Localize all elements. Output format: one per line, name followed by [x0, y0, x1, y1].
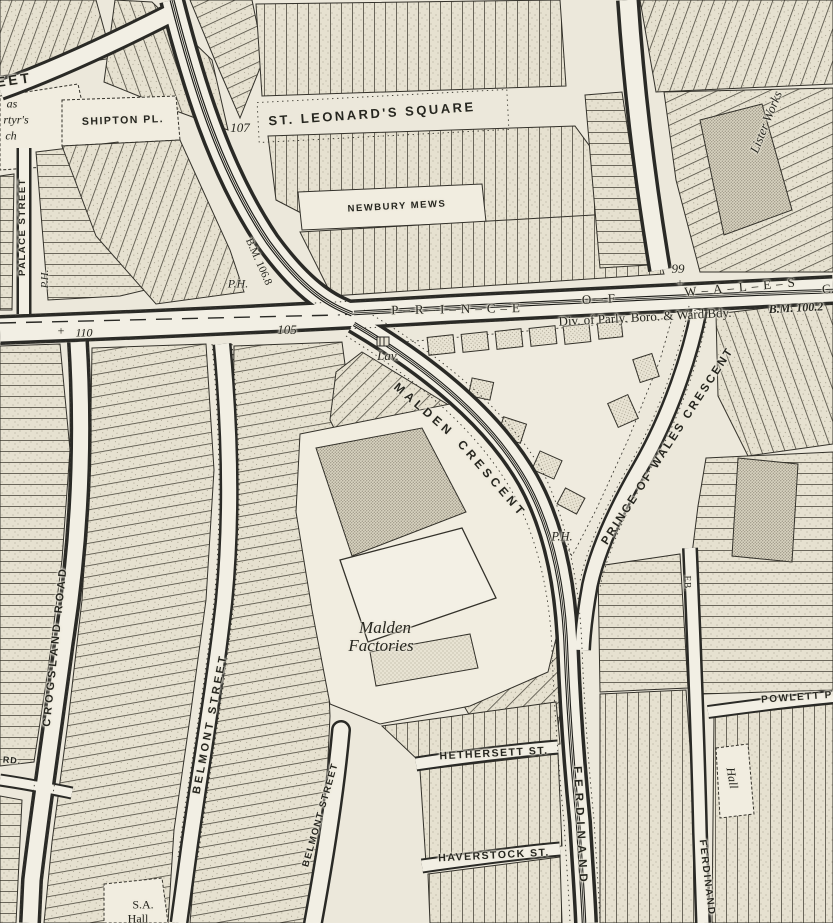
- public-house-label: P.H.: [40, 270, 52, 289]
- church-label-fragment: rtyr's: [3, 114, 28, 127]
- street-label-palace-street: PALACE STREET: [18, 178, 28, 276]
- lavatory-building-icon: [377, 337, 389, 346]
- road-name-fragment-rd: RD.: [2, 755, 21, 766]
- benchmark-100-2: B.M. 100.2: [768, 300, 823, 315]
- benchmark-cross: +: [677, 277, 684, 290]
- church-label-fragment: as: [7, 98, 18, 111]
- map-graphics: [0, 0, 833, 923]
- church-label-fragment: ch: [5, 130, 16, 143]
- spot-height-105: 105: [277, 323, 297, 337]
- spot-height-107: 107: [230, 121, 250, 135]
- road-label-fragment-c: C.: [821, 282, 833, 297]
- benchmark-cross: +: [58, 325, 65, 338]
- building-blocks: [0, 0, 833, 923]
- lavatory-label: Lav.: [377, 349, 399, 363]
- road-label-of: O–F: [582, 291, 621, 307]
- public-house-label: P.H.: [228, 278, 248, 291]
- sa-hall-label-line2: Hall: [128, 913, 149, 923]
- spot-height-99: 99: [672, 262, 685, 276]
- map-canvas: EET as rtyr's ch SHIPTON PL. 107 ST. LEO…: [0, 0, 833, 923]
- sa-hall-label-line1: S.A.: [132, 899, 153, 912]
- public-house-label: P.H.: [551, 530, 572, 543]
- factories-label-line1: Malden: [359, 619, 411, 637]
- spot-height-110: 110: [75, 327, 92, 340]
- footbridge-label: F.B.: [682, 576, 691, 591]
- hall-label-right: Hall: [724, 766, 740, 789]
- road-label-prince: P–R–I–N–C–E: [391, 301, 525, 317]
- factories-label-line2: Factories: [348, 637, 413, 655]
